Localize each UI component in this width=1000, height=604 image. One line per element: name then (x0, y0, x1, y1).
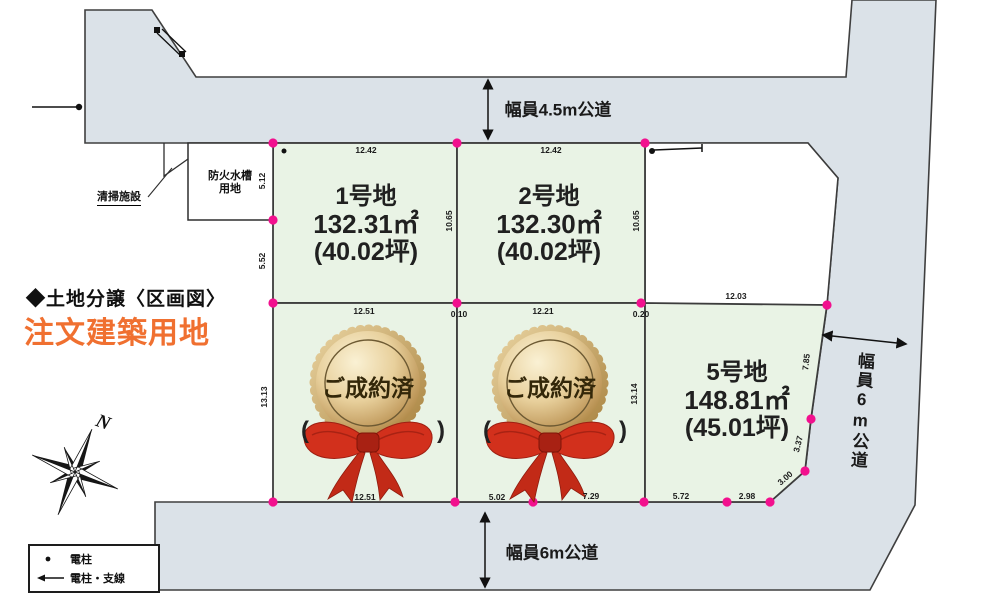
legend-row-pole: 電柱 (36, 551, 152, 567)
dim-bot-p3: 12.51 (354, 492, 375, 502)
dim-p2-top: 12.42 (540, 145, 561, 155)
plot5-tsubo: (45.01坪) (684, 415, 790, 443)
legend-row-pole-wire: 電柱・支線 (36, 570, 152, 586)
dim-left-lower: 5.52 (257, 253, 267, 270)
dim-bot-p4b: 7.29 (583, 491, 600, 501)
dim-left-upper: 5.12 (257, 173, 267, 190)
dim-p3-left: 13.13 (259, 386, 269, 407)
pole-dot-icon (36, 554, 66, 564)
parcel-unlabeled (645, 143, 838, 305)
hidden-text-paren: ) (437, 417, 445, 445)
pole-dot-icon (282, 149, 287, 154)
pole-wire-arrow-icon (36, 573, 66, 583)
dim-p1-right: 10.65 (444, 210, 454, 231)
fire-tank-label: 防火水槽 用地 (208, 170, 252, 196)
sold-seal-text: ご成約済 (504, 369, 596, 403)
plot5-label: 5号地 148.81㎡ (45.01坪) (684, 360, 790, 442)
dim-p2-right: 10.65 (631, 210, 641, 231)
dim-p5-top: 12.03 (725, 291, 746, 301)
hidden-text-paren: ) (619, 417, 627, 445)
plot2-label: 2号地 132.30㎡ (40.02坪) (496, 184, 602, 266)
plot5-name: 5号地 (684, 360, 790, 386)
plot2-name: 2号地 (496, 184, 602, 210)
road-label-top: 幅員4.5m公道 (505, 96, 612, 121)
dim-p5-right-upper: 7.85 (800, 353, 812, 371)
plot5-area: 148.81㎡ (684, 386, 790, 415)
legend-pole-wire-label: 電柱・支線 (70, 570, 125, 586)
dim-mid-p3: 12.51 (353, 306, 374, 316)
plot1-label: 1号地 132.31㎡ (40.02坪) (313, 184, 419, 266)
legend-box: 電柱 電柱・支線 (28, 544, 160, 593)
plot1-tsubo: (40.02坪) (313, 239, 419, 267)
dim-mid-gap1: 0.10 (451, 309, 468, 319)
page-subtitle: 注文建築用地 (24, 308, 210, 352)
sold-seal-text: ご成約済 (322, 369, 414, 403)
fire-tank-label-line1: 防火水槽 (208, 170, 252, 183)
dim-mid-p4: 12.21 (532, 306, 553, 316)
page-title: ◆土地分譲〈区画図〉 (26, 284, 226, 311)
compass-rose-icon (32, 429, 118, 515)
dim-bot-p5a: 5.72 (673, 491, 690, 501)
legend-pole-label: 電柱 (70, 551, 92, 567)
hidden-text-paren: ( (483, 417, 491, 445)
road-label-bottom: 幅員6m公道 (506, 539, 599, 564)
plot2-tsubo: (40.02坪) (496, 239, 602, 267)
hidden-text-paren: ( (301, 417, 309, 445)
dim-bot-p4a: 5.02 (489, 492, 506, 502)
site-plan-map: ◆土地分譲〈区画図〉 注文建築用地 幅員4.5m公道 幅員6m公道 幅員6m公道… (0, 0, 1000, 604)
cleaning-facility-leader (148, 168, 172, 197)
plot2-area: 132.30㎡ (496, 210, 602, 239)
dim-p1-top: 12.42 (355, 145, 376, 155)
dim-mid-gap2: 0.20 (633, 309, 650, 319)
fire-tank-label-line2: 用地 (208, 183, 252, 196)
dim-p4-right: 13.14 (629, 383, 639, 404)
pole-wire-icon (32, 104, 82, 110)
plot1-name: 1号地 (313, 184, 419, 210)
cleaning-facility-label: 清掃施設 (97, 188, 141, 206)
cleaning-facility-shape (164, 143, 188, 176)
plot1-area: 132.31㎡ (313, 210, 419, 239)
dim-bot-p5b: 2.98 (739, 491, 756, 501)
